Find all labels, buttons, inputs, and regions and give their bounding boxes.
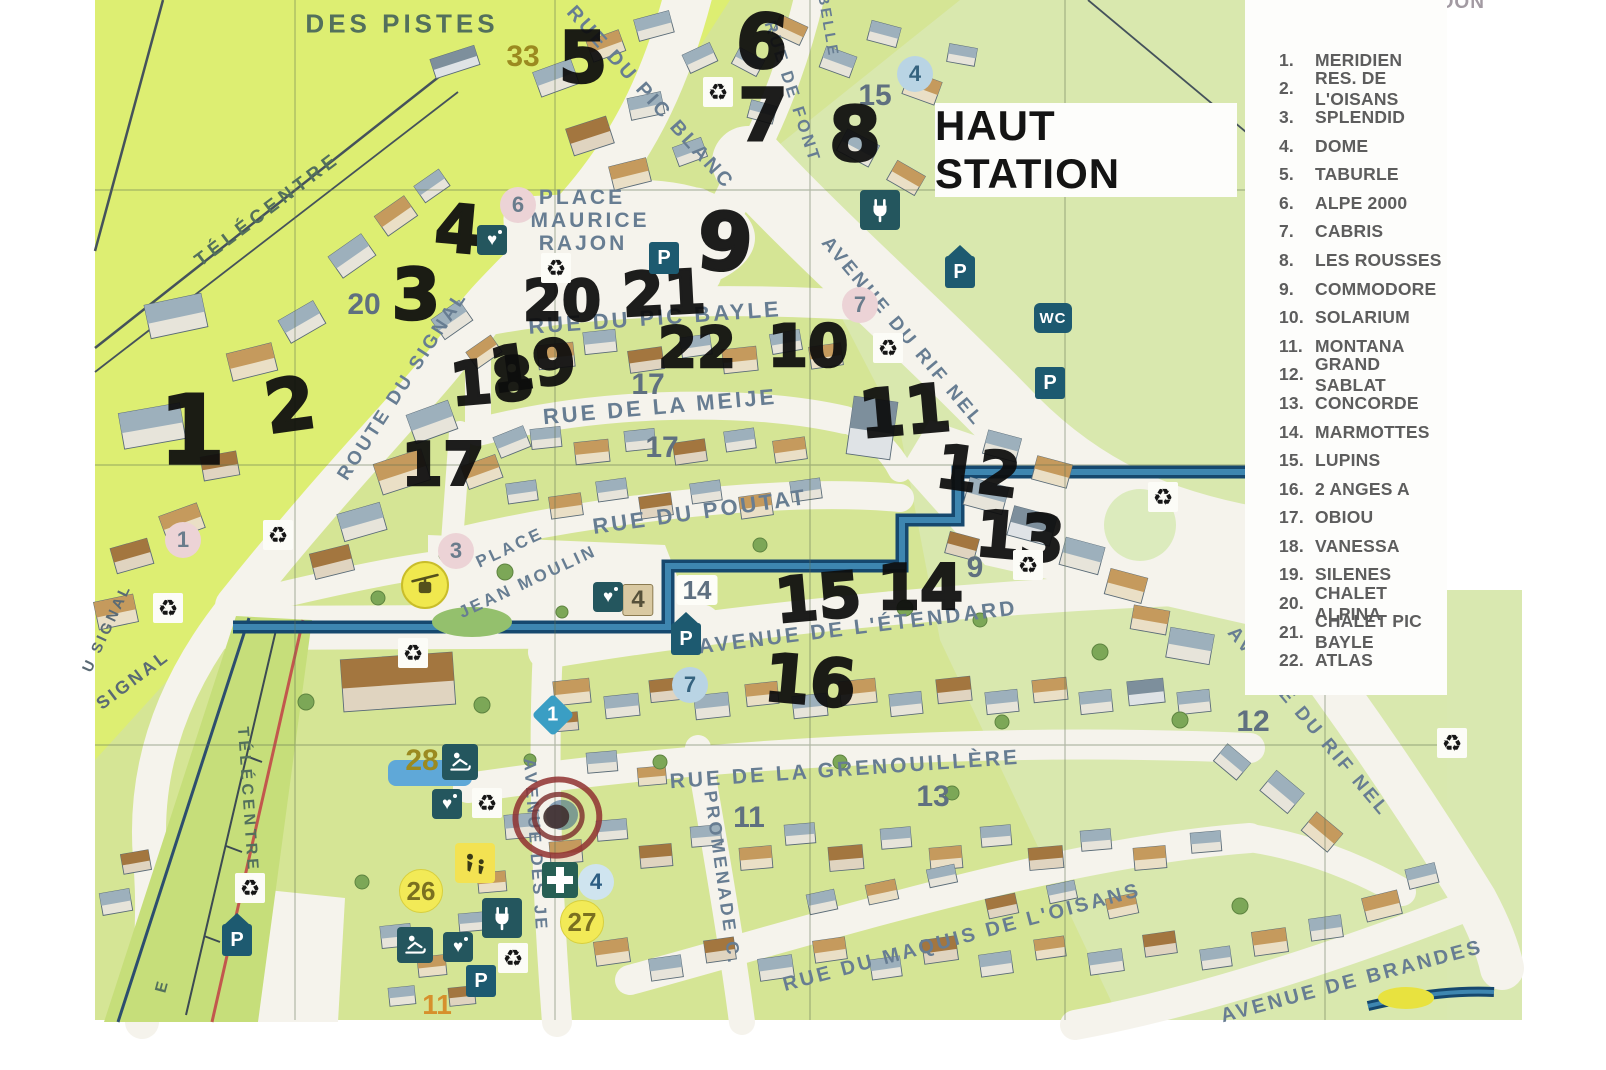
tree — [371, 591, 385, 605]
building — [1028, 846, 1064, 871]
building — [1088, 949, 1125, 976]
legend-item-number: 1. — [1279, 50, 1315, 71]
legend-item-label: SPLENDID — [1315, 107, 1405, 128]
building — [880, 827, 912, 850]
building — [388, 986, 416, 1007]
legend-item: 6.ALPE 2000 — [1279, 189, 1447, 218]
handwritten-number-19: 19 — [486, 329, 580, 402]
building — [1080, 829, 1112, 852]
legend-item: 18.VANESSA — [1279, 532, 1447, 561]
legend-panel: 1.MERIDIEN2.RES. DE L'OISANS3.SPLENDID4.… — [1245, 0, 1447, 695]
handwritten-number-5: 5 — [559, 23, 608, 93]
legend-item-label: LUPINS — [1315, 450, 1380, 471]
legend-item-label: RES. DE L'OISANS — [1315, 68, 1447, 110]
building — [1309, 915, 1344, 941]
building — [889, 691, 923, 716]
legend-item-number: 13. — [1279, 393, 1315, 414]
building — [773, 437, 808, 463]
building — [739, 846, 773, 871]
legend-item-label: MARMOTTES — [1315, 422, 1430, 443]
legend-item-number: 3. — [1279, 107, 1315, 128]
building — [639, 844, 673, 869]
heart-icon — [477, 225, 507, 255]
printed-marker-7-circle-blue: 7 — [672, 667, 708, 703]
legend-item: 15.LUPINS — [1279, 446, 1447, 475]
building — [1127, 678, 1165, 706]
building — [1200, 946, 1232, 970]
building — [985, 689, 1019, 714]
building — [784, 823, 816, 846]
handwritten-number-14: 14 — [877, 557, 963, 619]
building — [936, 676, 972, 703]
legend-item-number: 16. — [1279, 479, 1315, 500]
legend-item-number: 12. — [1279, 364, 1315, 385]
legend-item-label: ATLAS — [1315, 650, 1373, 671]
printed-marker-26-circle: 26 — [399, 869, 443, 913]
map-title-box: HAUT STATION — [935, 103, 1237, 197]
recycle-icon — [1437, 728, 1467, 758]
printed-marker-27-circle: 27 — [560, 900, 604, 944]
printed-marker-13: 13 — [916, 782, 949, 812]
legend-item: 8.LES ROUSSES — [1279, 246, 1447, 275]
handwritten-number-3: 3 — [392, 260, 441, 330]
printed-marker-17b: 17 — [645, 433, 678, 463]
wc-icon: WC — [1034, 303, 1072, 333]
building — [724, 428, 756, 452]
legend-item: 2.RES. DE L'OISANS — [1279, 75, 1447, 104]
recycle-icon — [1148, 482, 1178, 512]
building — [1079, 689, 1113, 714]
printed-marker-1-diamond-text: 1 — [547, 705, 558, 725]
building — [980, 825, 1012, 848]
recycle-icon — [703, 77, 733, 107]
building — [596, 478, 628, 502]
building — [979, 951, 1014, 977]
legend-item-label: COMMODORE — [1315, 279, 1436, 300]
parking-icon: P — [466, 965, 496, 997]
legend-item-number: 5. — [1279, 164, 1315, 185]
legend-item-number: 9. — [1279, 279, 1315, 300]
legend-item-number: 6. — [1279, 193, 1315, 214]
scanned-resort-map-page: DES PISTES TÉLÉCENTRE RUE DU PIC BLANC R… — [0, 0, 1606, 1070]
printed-marker-20: 20 — [347, 290, 380, 320]
legend-item-label: SOLARIUM — [1315, 307, 1410, 328]
legend-item: 12.GRAND SABLAT — [1279, 361, 1447, 390]
parking-icon: P — [649, 242, 679, 274]
place-maurice-rajon-line2: MAURICE — [531, 209, 650, 233]
legend-item-label: VANESSA — [1315, 536, 1400, 557]
legend-item-label: ALPE 2000 — [1315, 193, 1407, 214]
building — [99, 889, 132, 916]
legend-item-number: 18. — [1279, 536, 1315, 557]
building — [574, 439, 610, 464]
legend-item: 10.SOLARIUM — [1279, 303, 1447, 332]
place-maurice-rajon-line1: PLACE — [539, 186, 625, 210]
legend-item: 21.CHALET PIC BAYLE — [1279, 618, 1447, 647]
legend-item-number: 17. — [1279, 507, 1315, 528]
parking-shelter-icon: P — [222, 924, 252, 956]
sledding-icon — [442, 744, 478, 780]
legend-items: 1.MERIDIEN2.RES. DE L'OISANS3.SPLENDID4.… — [1279, 46, 1447, 675]
handwritten-number-8: 8 — [829, 98, 881, 173]
handwritten-number-22: 22 — [658, 321, 736, 377]
legend-item-number: 20. — [1279, 593, 1315, 614]
legend-item-label: LES ROUSSES — [1315, 250, 1442, 271]
legend-item-label: CABRIS — [1315, 221, 1383, 242]
sledding-icon — [397, 927, 433, 963]
legend-item-number: 10. — [1279, 307, 1315, 328]
tree — [474, 697, 490, 713]
handwritten-number-16: 16 — [761, 645, 858, 719]
tree — [556, 606, 568, 618]
handwritten-number-7: 7 — [738, 79, 788, 151]
legend-item-label: DOME — [1315, 136, 1368, 157]
building — [1032, 677, 1068, 702]
legend-item-label: CONCORDE — [1315, 393, 1419, 414]
printed-marker-33: 33 — [506, 42, 539, 72]
printed-marker-14-box: 14 — [677, 575, 718, 605]
building — [1251, 928, 1288, 956]
recycle-icon — [398, 638, 428, 668]
tree — [653, 755, 667, 769]
handwritten-number-1: 1 — [159, 385, 225, 480]
heart-icon — [443, 932, 473, 962]
legend-item: 5.TABURLE — [1279, 160, 1447, 189]
building — [549, 493, 584, 519]
printed-marker-6-circle: 6 — [500, 187, 536, 223]
legend-item-number: 11. — [1279, 336, 1315, 357]
parking-shelter-icon: P — [671, 623, 701, 655]
building — [120, 850, 151, 875]
cable-car-icon — [401, 561, 449, 609]
recycle-icon — [263, 520, 293, 550]
heart-icon — [593, 582, 623, 612]
electric-plug-icon — [482, 898, 522, 938]
heart-icon — [432, 789, 462, 819]
tree — [1092, 644, 1108, 660]
legend-item-number: 21. — [1279, 622, 1315, 643]
printed-marker-3-circle: 3 — [438, 533, 474, 569]
legend-item-number: 15. — [1279, 450, 1315, 471]
building — [1133, 846, 1167, 871]
tree — [298, 694, 314, 710]
tree — [753, 538, 767, 552]
parking-icon: P — [1035, 367, 1065, 399]
building — [828, 845, 864, 872]
building — [1143, 931, 1178, 957]
legend-item-number: 7. — [1279, 221, 1315, 242]
map-title: HAUT STATION — [935, 102, 1237, 198]
printed-marker-4-tan-box: 4 — [622, 584, 653, 616]
legend-item-number: 19. — [1279, 564, 1315, 585]
tree — [497, 564, 513, 580]
legend-item-number: 14. — [1279, 422, 1315, 443]
electric-plug-icon — [860, 190, 900, 230]
legend-item-label: CHALET PIC BAYLE — [1315, 611, 1447, 653]
building — [604, 693, 640, 718]
target-mark — [496, 762, 620, 881]
printed-marker-11: 11 — [733, 803, 765, 833]
building — [649, 955, 684, 981]
legend-item-label: GRAND SABLAT — [1315, 354, 1447, 396]
legend-item: 16.2 ANGES A — [1279, 475, 1447, 504]
parking-shelter-icon: P — [945, 256, 975, 288]
building — [1034, 936, 1066, 960]
legend-item: 9.COMMODORE — [1279, 275, 1447, 304]
legend-item-label: OBIOU — [1315, 507, 1373, 528]
recycle-icon — [235, 873, 265, 903]
legend-item: 17.OBIOU — [1279, 504, 1447, 533]
handwritten-number-11: 11 — [856, 375, 953, 449]
legend-item: 4.DOME — [1279, 132, 1447, 161]
printed-marker-11-orange: 11 — [422, 991, 452, 1019]
legend-item-number: 22. — [1279, 650, 1315, 671]
tree — [355, 875, 369, 889]
building — [1190, 831, 1222, 854]
recycle-icon — [873, 333, 903, 363]
legend-item-number: 4. — [1279, 136, 1315, 157]
legend-item-number: 2. — [1279, 78, 1315, 99]
handwritten-number-17: 17 — [401, 435, 485, 495]
recycle-icon — [1013, 550, 1043, 580]
printed-marker-1-circle: 1 — [165, 522, 201, 558]
building — [506, 480, 538, 504]
printed-marker-28: 28 — [405, 746, 438, 776]
tree — [1232, 898, 1248, 914]
tree — [995, 715, 1009, 729]
handwritten-number-10: 10 — [768, 317, 849, 375]
printed-marker-4-circle: 4 — [897, 56, 933, 92]
legend-item: 14.MARMOTTES — [1279, 418, 1447, 447]
printed-marker-12: 12 — [1236, 707, 1269, 737]
recycle-icon — [153, 593, 183, 623]
legend-item-number: 8. — [1279, 250, 1315, 271]
handwritten-number-6: 6 — [733, 2, 792, 81]
street-label-des-pistes: DES PISTES — [305, 9, 498, 40]
recycle-icon — [498, 943, 528, 973]
playground-icon — [455, 843, 495, 883]
legend-item: 7.CABRIS — [1279, 218, 1447, 247]
handwritten-number-15: 15 — [772, 563, 863, 632]
handwritten-number-2: 2 — [260, 366, 320, 444]
recycle-icon — [541, 253, 571, 283]
legend-item-label: 2 ANGES A — [1315, 479, 1410, 500]
building — [593, 938, 630, 966]
legend-item-label: TABURLE — [1315, 164, 1399, 185]
building — [1177, 689, 1211, 714]
tree — [1172, 712, 1188, 728]
